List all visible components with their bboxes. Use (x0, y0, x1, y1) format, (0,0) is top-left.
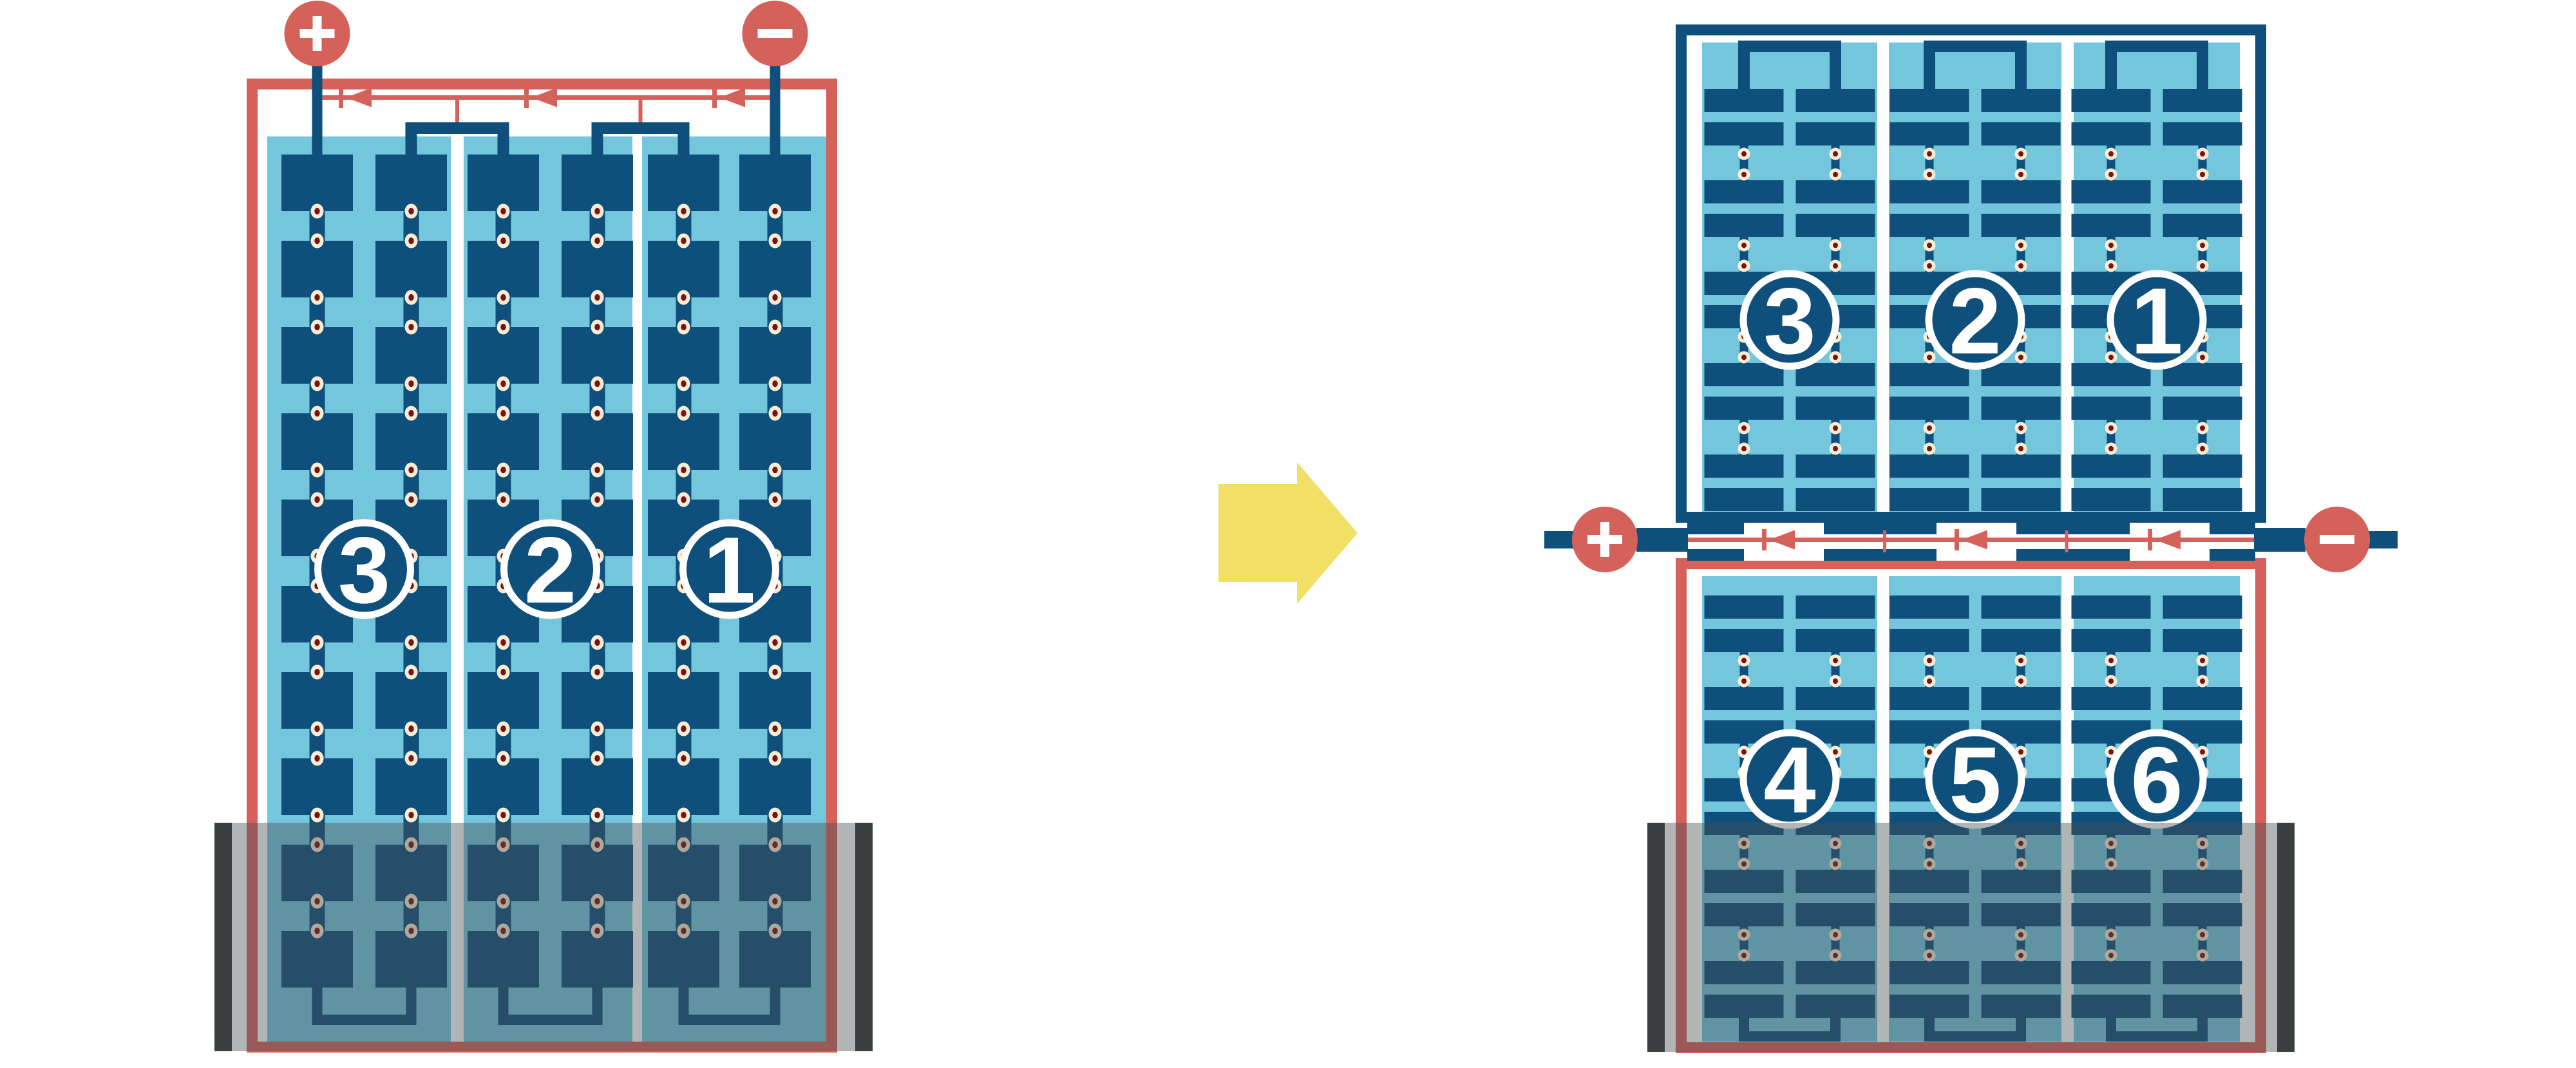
cell-group-badge: 5 (1929, 727, 2022, 832)
battery-reconfiguration-diagram: 321321456 (0, 0, 2576, 1068)
right-arrow-icon (1218, 462, 1358, 604)
cell-group-badge: 1 (683, 518, 776, 623)
cell-group-number: 4 (1763, 727, 1815, 832)
positive-terminal (1572, 507, 1638, 572)
minus-icon (2320, 535, 2354, 544)
transform-arrow (1218, 462, 1358, 604)
column-divider (1877, 42, 1889, 512)
negative-terminal (743, 1, 808, 66)
terminal-stem (770, 57, 781, 161)
diagram-stage: 321321456 (0, 0, 2576, 1068)
busbar-tap (455, 98, 459, 124)
plus-icon (1600, 522, 1609, 557)
cell-group-number: 3 (338, 518, 390, 623)
cell-group-number: 6 (2130, 727, 2183, 832)
cell-group-badge: 1 (2110, 268, 2203, 373)
cell-group-number: 1 (2130, 268, 2183, 373)
cell-group-number: 2 (524, 518, 576, 623)
terminal-stub (1544, 531, 1573, 548)
cell-group-number: 2 (1949, 268, 2001, 373)
tank-end-cap (2277, 823, 2295, 1052)
cell-group-badge: 3 (318, 518, 411, 623)
busbar-tap (2065, 530, 2069, 552)
minus-icon (758, 29, 793, 38)
terminal-stub (2254, 528, 2306, 552)
cell-group-badge: 6 (2110, 727, 2203, 832)
electrolyte-tank (214, 823, 873, 1051)
tank-liquid-overlay (1647, 823, 2295, 1052)
interconnect-busbar (317, 87, 775, 124)
tank-end-cap (214, 823, 232, 1051)
busbar-tap (1883, 530, 1886, 552)
cell-group-badge: 2 (1929, 268, 2022, 373)
right-battery-assembly: 321456 (1544, 30, 2398, 1053)
cell-group-badge: 3 (1743, 268, 1836, 373)
terminal-stub (2369, 531, 2398, 548)
cell-group-number: 5 (1949, 727, 2001, 832)
electrolyte-tank (1647, 823, 2295, 1052)
terminal-stub (1636, 528, 1688, 552)
plus-icon (313, 16, 322, 51)
top-unit: 321 (1681, 30, 2261, 518)
tank-end-cap (855, 823, 873, 1051)
busbar-tap (639, 98, 643, 124)
terminal-stem (312, 57, 323, 161)
cell-group-number: 1 (703, 518, 755, 623)
cell-group-number: 3 (1763, 268, 1815, 373)
positive-terminal (285, 1, 350, 66)
cell-group-badge: 4 (1743, 727, 1836, 832)
negative-terminal (2304, 507, 2370, 572)
left-battery-assembly: 321 (214, 1, 873, 1051)
cell-group-badge: 2 (504, 518, 597, 623)
tank-liquid-overlay (214, 823, 873, 1051)
tank-end-cap (1647, 823, 1665, 1052)
